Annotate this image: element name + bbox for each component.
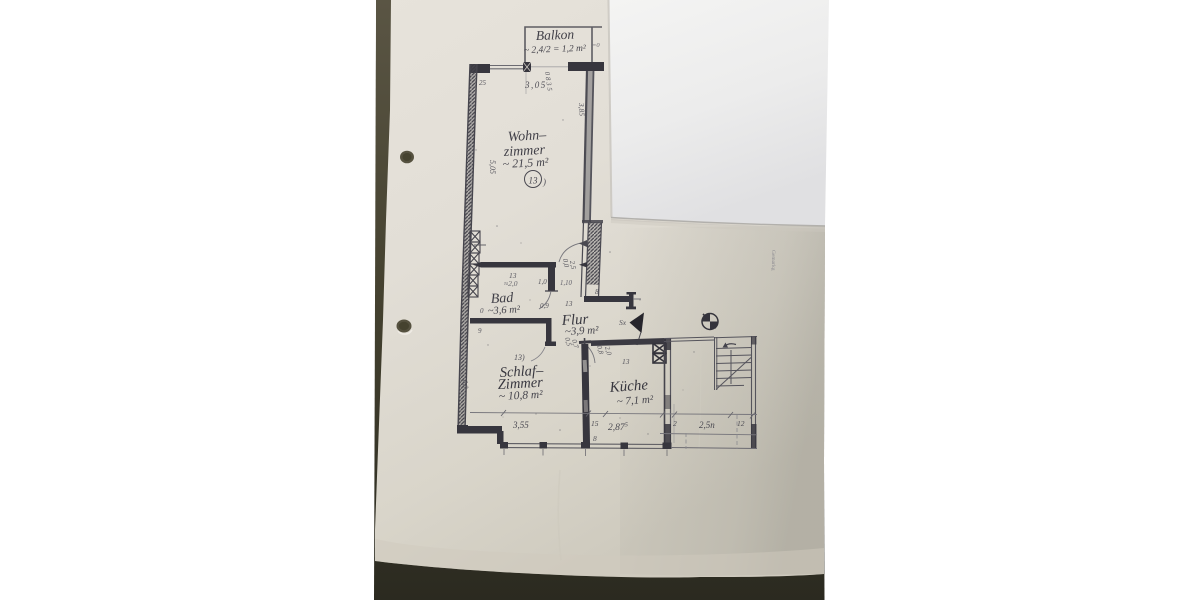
svg-text:9: 9 bbox=[478, 327, 482, 335]
svg-text:13): 13) bbox=[514, 353, 525, 362]
svg-text:1,0: 1,0 bbox=[538, 278, 547, 286]
svg-text:8: 8 bbox=[593, 434, 597, 443]
svg-text:~ 21,5 m²: ~ 21,5 m² bbox=[502, 155, 549, 171]
svg-text:0,0: 0,0 bbox=[461, 379, 470, 389]
svg-text:5,05: 5,05 bbox=[488, 160, 497, 174]
svg-text:8: 8 bbox=[595, 287, 599, 296]
svg-text:~3,6 m²: ~3,6 m² bbox=[488, 304, 522, 317]
svg-text:3,85: 3,85 bbox=[577, 102, 586, 117]
svg-text:=0: =0 bbox=[592, 42, 600, 49]
svg-text:~ 10,8 m²: ~ 10,8 m² bbox=[499, 389, 544, 403]
svg-text:Gemarkg: Gemarkg bbox=[770, 250, 776, 271]
svg-text:0,9: 0,9 bbox=[540, 302, 549, 310]
svg-text:12: 12 bbox=[737, 419, 745, 428]
svg-text:Balkon: Balkon bbox=[536, 27, 575, 43]
svg-text:≈2,0: ≈2,0 bbox=[504, 279, 518, 288]
svg-text:13: 13 bbox=[622, 357, 630, 366]
svg-text:2: 2 bbox=[673, 419, 677, 428]
svg-text:3,55: 3,55 bbox=[512, 420, 529, 430]
svg-text:): ) bbox=[542, 177, 546, 187]
svg-text:13: 13 bbox=[529, 176, 539, 186]
svg-text:25: 25 bbox=[479, 79, 487, 87]
svg-text:13: 13 bbox=[565, 299, 573, 308]
svg-text:15: 15 bbox=[591, 419, 599, 428]
svg-text:1,10: 1,10 bbox=[560, 280, 572, 287]
svg-text:0: 0 bbox=[480, 307, 484, 315]
svg-text:Sx: Sx bbox=[619, 318, 627, 327]
svg-text:2,5n: 2,5n bbox=[699, 420, 715, 430]
svg-text:3,05: 3,05 bbox=[524, 80, 547, 90]
